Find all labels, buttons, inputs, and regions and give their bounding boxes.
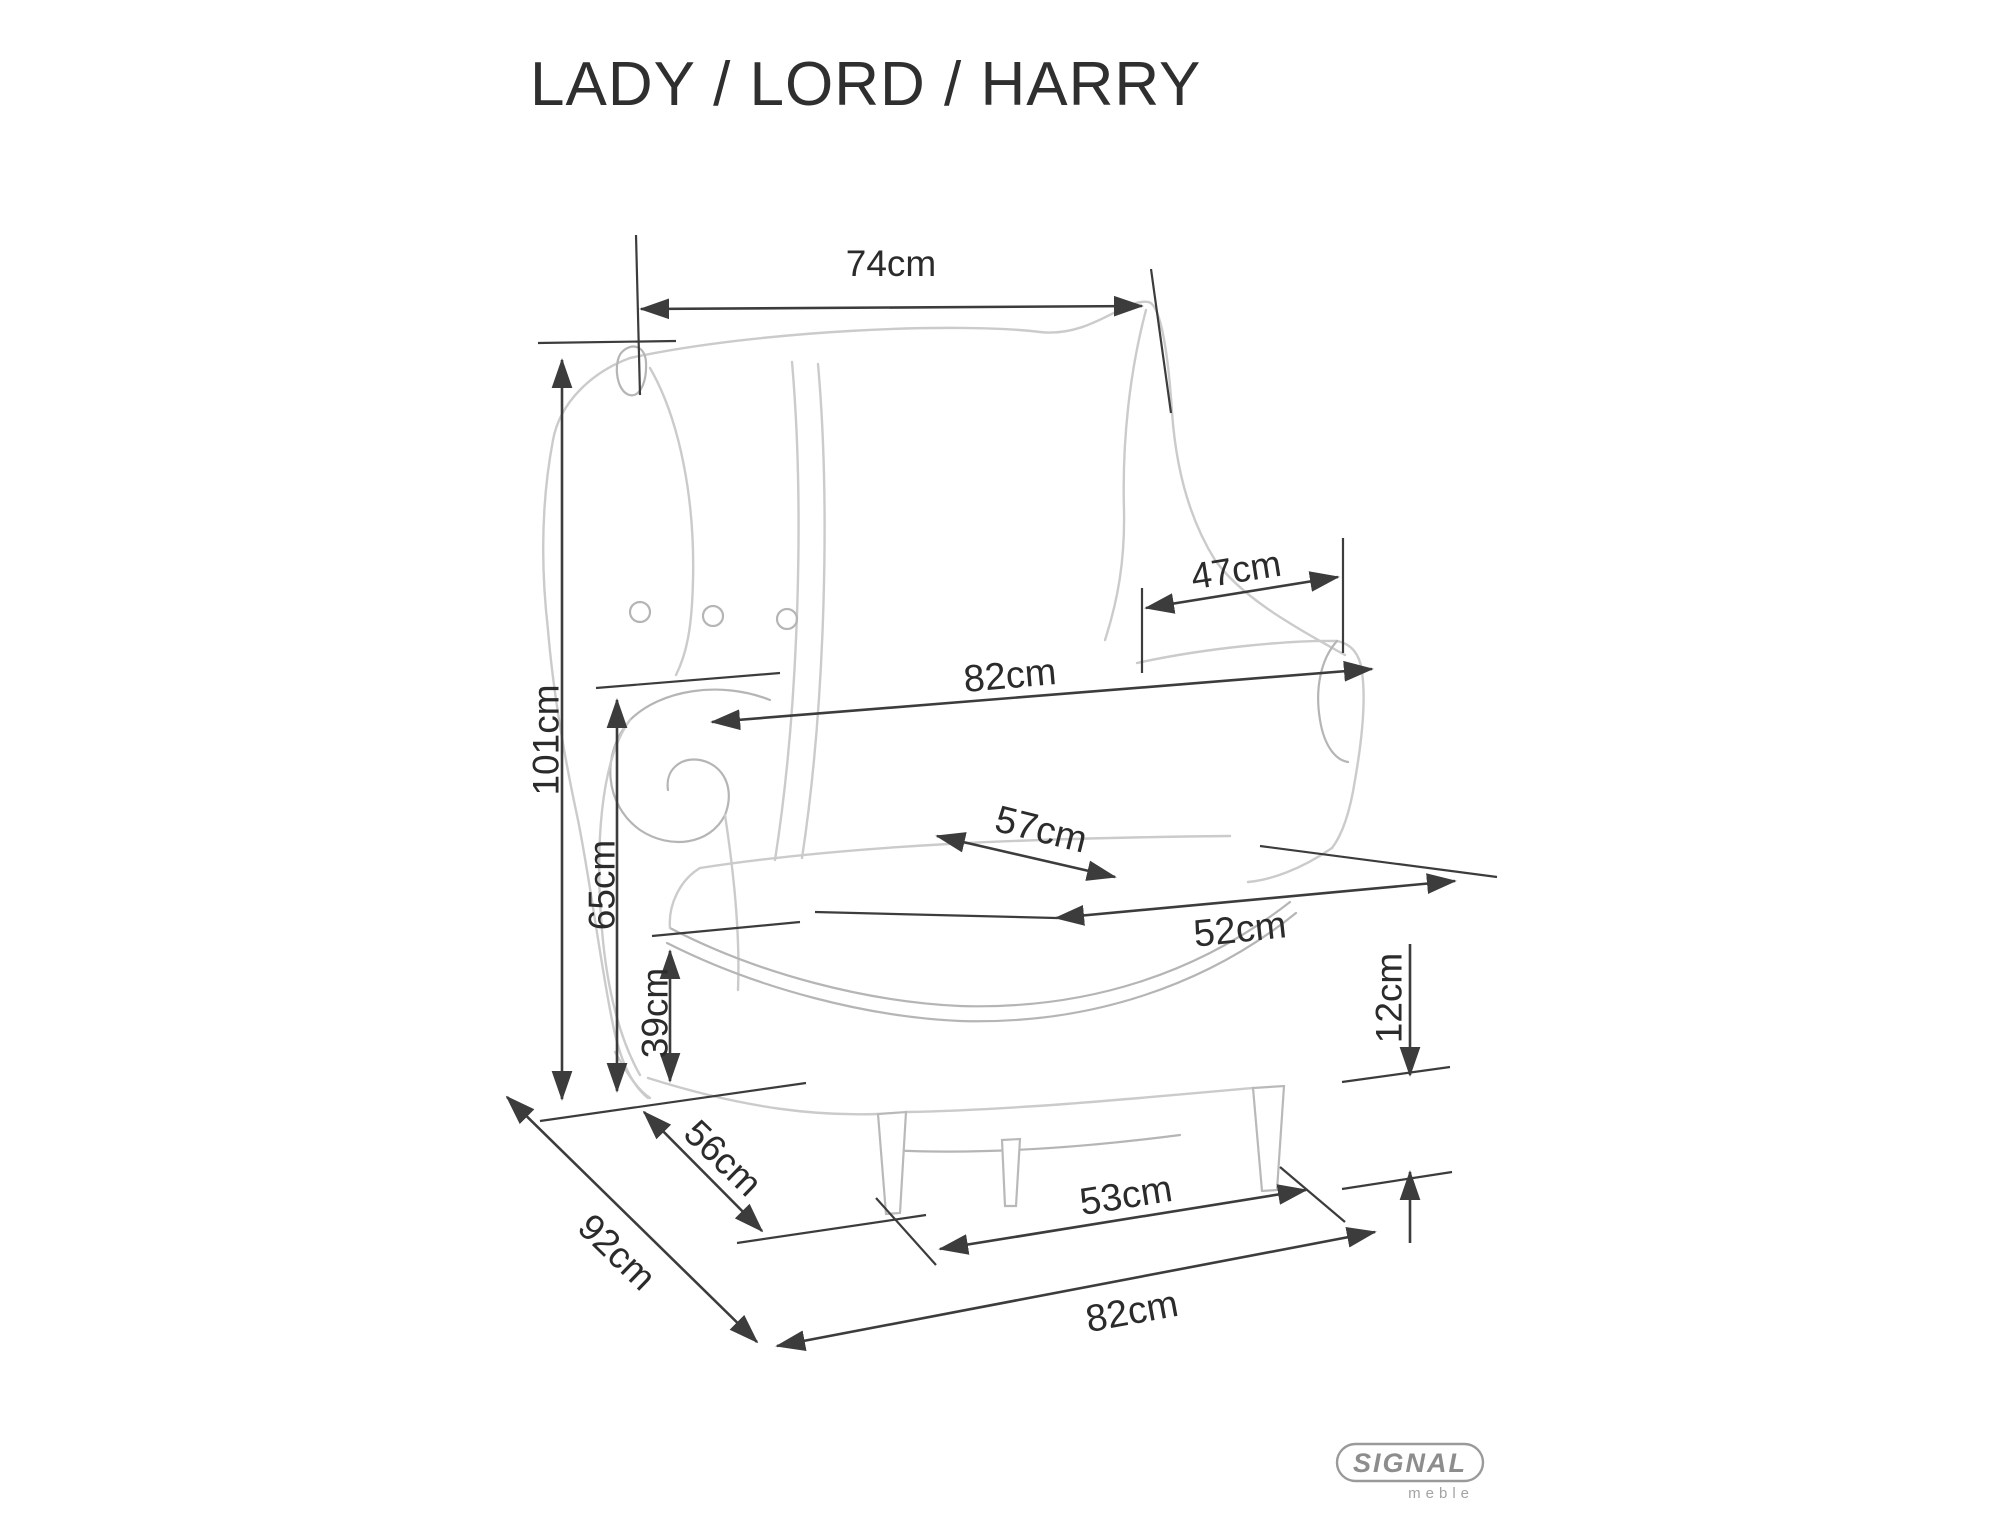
extension-line	[596, 673, 780, 688]
armchair-dimension-diagram: LADY / LORD / HARRY 74cm 101cm 65cm 39cm…	[0, 0, 2000, 1530]
dimension-front-leg-span-label: 53cm	[1077, 1168, 1175, 1224]
extension-line	[538, 341, 676, 343]
brand-logo: SIGNAL meble	[1337, 1444, 1483, 1502]
dimension-arm-height: 65cm	[582, 673, 781, 1091]
dimension-arm-level-width: 82cm	[712, 651, 1372, 722]
extension-line	[1151, 269, 1171, 413]
extension-line	[1342, 1172, 1452, 1189]
base-underside	[886, 1135, 1180, 1152]
tufting-buttons	[630, 602, 797, 629]
seat-cushion-back-edge	[700, 836, 1230, 868]
base-edge-right	[906, 1088, 1253, 1112]
dimension-seat-height-label: 39cm	[635, 968, 676, 1058]
dimension-overall-width-label: 82cm	[1082, 1283, 1181, 1341]
right-arm-scroll	[1318, 641, 1348, 762]
dimension-seat-front-width: 52cm	[815, 846, 1497, 956]
extension-line	[815, 912, 1056, 918]
left-arm-scroll	[610, 690, 770, 842]
extension-line	[737, 1215, 926, 1243]
right-wing-inner-edge	[1105, 310, 1146, 640]
armchair-sketch	[543, 302, 1363, 1214]
left-wing-tip	[617, 347, 646, 396]
left-arm-inner-edge	[725, 815, 738, 990]
extension-line	[1342, 1067, 1450, 1082]
dimension-overall-depth-label: 92cm	[570, 1206, 664, 1298]
dimension-arrow	[641, 306, 1142, 309]
technical-drawing-page: LADY / LORD / HARRY 74cm 101cm 65cm 39cm…	[0, 0, 2000, 1530]
extension-line	[1260, 846, 1497, 877]
dimension-top-width-label: 74cm	[846, 243, 936, 284]
page-title: LADY / LORD / HARRY	[530, 50, 1201, 119]
base-edge-left	[648, 1078, 878, 1114]
floor-baseline	[540, 1083, 806, 1121]
dimension-arrow	[777, 1232, 1375, 1346]
dimension-leg-height-label: 12cm	[1369, 953, 1410, 1043]
dimension-between-arms-width: 47cm	[1142, 538, 1343, 673]
extension-line	[636, 235, 640, 395]
button-icon	[703, 606, 723, 626]
dimension-seat-front-width-label: 52cm	[1192, 904, 1289, 955]
dimension-arm-level-width-label: 82cm	[962, 651, 1058, 701]
brand-tagline: meble	[1408, 1485, 1474, 1502]
front-left-leg	[878, 1112, 906, 1214]
brand-name: SIGNAL	[1353, 1448, 1467, 1478]
dimension-overall-height-label: 101cm	[526, 684, 567, 795]
left-wing-inner-edge	[650, 368, 693, 675]
button-icon	[630, 602, 650, 622]
extension-line	[876, 1198, 936, 1265]
front-right-leg	[1253, 1086, 1284, 1191]
button-icon	[777, 609, 797, 629]
dimension-overall-width: 82cm	[777, 1232, 1375, 1346]
back-leg	[1002, 1139, 1020, 1206]
back-panel-seam-right	[802, 364, 825, 858]
right-arm-top-edge	[1137, 641, 1337, 663]
backrest-outline	[630, 302, 1345, 655]
back-panel-seam-left	[775, 362, 799, 860]
seat-cushion-left-edge	[670, 868, 700, 928]
dimension-arm-height-label: 65cm	[582, 840, 623, 930]
extension-line	[1280, 1167, 1345, 1222]
dimension-leg-height: 12cm	[1342, 944, 1452, 1243]
dimension-seat-height: 39cm	[635, 922, 801, 1081]
